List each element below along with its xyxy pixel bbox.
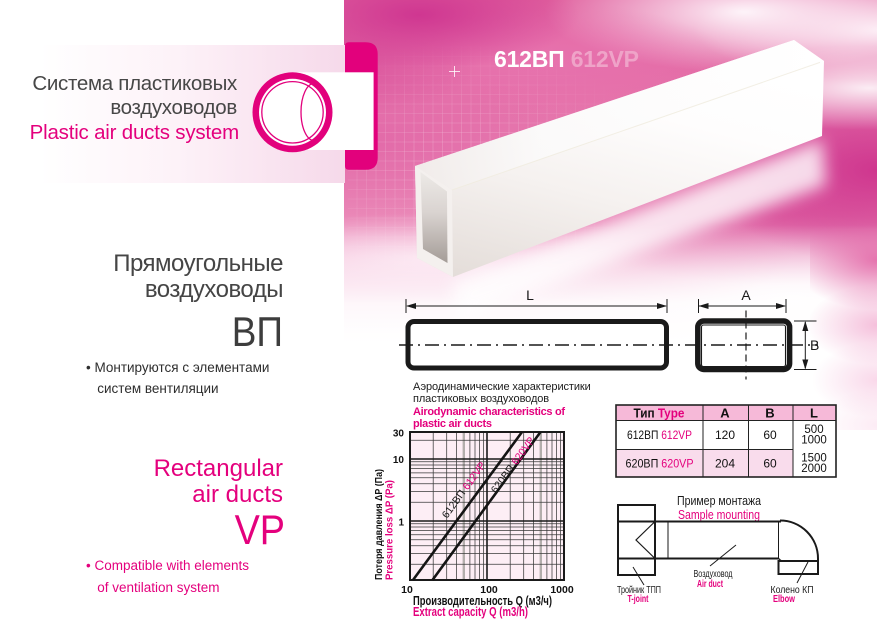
svg-text:L: L (526, 287, 534, 303)
svg-text:A: A (720, 406, 730, 421)
svg-text:2000: 2000 (801, 463, 827, 475)
svg-text:B: B (810, 337, 819, 353)
svg-text:L: L (810, 406, 818, 421)
svg-text:10: 10 (393, 455, 405, 466)
svg-text:T-joint: T-joint (628, 594, 649, 605)
svg-text:Extract capacity Q (m3/h): Extract capacity Q (m3/h) (413, 605, 528, 619)
svg-text:Sample mounting: Sample mounting (678, 507, 760, 522)
svg-text:120: 120 (715, 428, 735, 442)
svg-text:204: 204 (715, 457, 735, 471)
svg-text:10: 10 (401, 584, 413, 596)
svg-text:Pressure loss ΔP (Pa): Pressure loss ΔP (Pa) (385, 480, 396, 580)
svg-text:Пример монтажа: Пример монтажа (677, 493, 762, 508)
svg-text:B: B (765, 406, 774, 421)
svg-text:60: 60 (763, 428, 777, 442)
svg-text:A: A (741, 287, 751, 303)
svg-text:Потеря давления ΔP (Па): Потеря давления ΔP (Па) (375, 469, 385, 580)
svg-text:30: 30 (393, 429, 405, 440)
svg-text:60: 60 (763, 457, 777, 471)
svg-text:Elbow: Elbow (773, 594, 795, 605)
svg-text:1: 1 (398, 517, 404, 528)
svg-text:1000: 1000 (801, 435, 827, 447)
svg-text:Тип Type: Тип Type (634, 406, 685, 421)
svg-text:620ВП 620VP: 620ВП 620VP (626, 457, 694, 471)
svg-text:1000: 1000 (550, 584, 574, 596)
svg-text:612ВП 612VP: 612ВП 612VP (627, 428, 692, 442)
svg-text:Air duct: Air duct (697, 579, 723, 590)
